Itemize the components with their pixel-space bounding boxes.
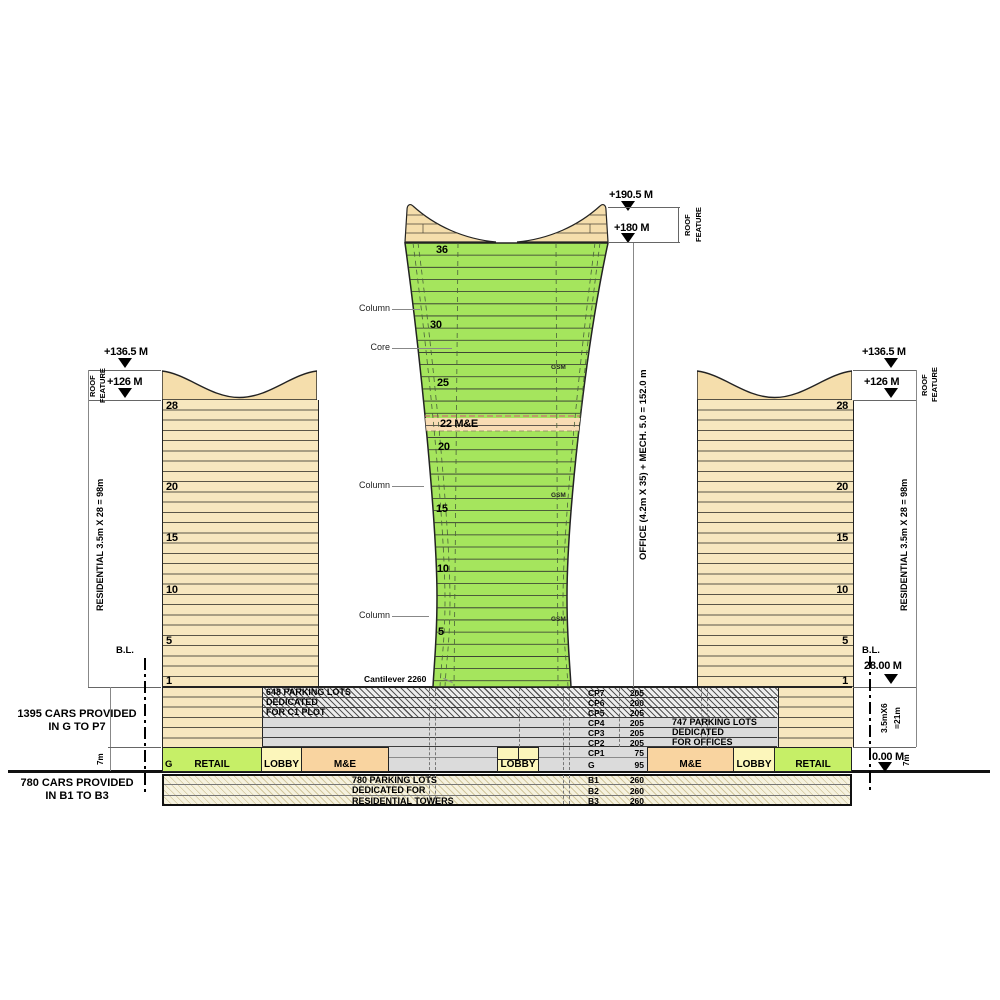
elev-marker-icon (884, 388, 898, 398)
lobby-label: LOBBY (501, 759, 536, 771)
elev-marker-icon (878, 762, 892, 772)
grid-dash (563, 775, 565, 804)
level-value: 75 (618, 748, 644, 758)
level-value: 200 (618, 698, 644, 708)
left-elev-roof: +126 M (107, 376, 142, 388)
retail-left-block: RETAIL (162, 747, 262, 772)
elev-marker-icon (118, 388, 132, 398)
left-tower-roof-feature (162, 367, 317, 400)
ground-g-label: G (165, 759, 172, 770)
office-elev-top: +190.5 M (609, 189, 653, 201)
dim-line (853, 687, 916, 688)
column-label: Column (330, 610, 390, 620)
level-value: 260 (618, 796, 644, 806)
level-value: 205 (618, 728, 644, 738)
grid-dash (519, 688, 521, 747)
left-height-dim-note: RESIDENTIAL 3.5m X 28 = 98m (95, 445, 113, 645)
level-label: CP5 (588, 708, 616, 718)
left-7m-dim: 7m (96, 747, 109, 771)
leader-line (392, 309, 420, 310)
office-floor-label: 20 (438, 441, 450, 453)
level-value: 205 (618, 738, 644, 748)
elev-marker-icon (118, 358, 132, 368)
left-floor-label: 15 (166, 532, 178, 544)
level-value: 205 (618, 708, 644, 718)
leader-line (392, 616, 429, 617)
right-bl-label: B.L. (862, 645, 880, 656)
office-floor-label: 30 (430, 319, 442, 331)
dim-line (608, 242, 680, 243)
right-floor-label: 20 (800, 481, 848, 493)
note-parking-c1: 648 PARKING LOTS DEDICATED FOR C1 PLOT (266, 687, 351, 718)
gsm-label: GSM (551, 364, 566, 371)
office-floor-label: 5 (438, 626, 444, 638)
retail-label: RETAIL (795, 759, 830, 771)
right-floor-label: 10 (800, 584, 848, 596)
level-label: B2 (588, 786, 616, 796)
right-roof-feature-label: ROOF FEATURE (920, 362, 944, 408)
left-boundary-line (144, 658, 146, 792)
office-floor-label: 36 (436, 244, 448, 256)
left-roof-feature-label: ROOF FEATURE (88, 364, 112, 408)
note-parking-offices: 747 PARKING LOTS DEDICATED FOR OFFICES (672, 717, 757, 748)
elevation-drawing: RETAIL LOBBY M&E LOBBY M&E LOBBY RETAIL … (0, 0, 1000, 1000)
office-height-dim-line (633, 243, 634, 687)
cars-basement-note: 780 CARS PROVIDED IN B1 TO B3 (12, 777, 142, 802)
lobby-label: LOBBY (737, 759, 772, 771)
office-floor-label: 10 (437, 563, 449, 575)
right-floor-label: 15 (800, 532, 848, 544)
level-label: G (588, 760, 616, 770)
retail-right-block: RETAIL (774, 747, 852, 772)
retail-label: RETAIL (194, 759, 229, 771)
column-label: Column (330, 303, 390, 313)
left-floor-label: 10 (166, 584, 178, 596)
right-7m-dim: 7m (902, 749, 915, 771)
note-parking-residential: 780 PARKING LOTS DEDICATED FOR RESIDENTI… (352, 775, 454, 807)
column-label: Column (330, 480, 390, 490)
cantilever-label: Cantilever 2260 (364, 674, 426, 684)
right-floor-label: 1 (800, 675, 848, 687)
level-value: 95 (618, 760, 644, 770)
office-floor-label: 15 (436, 503, 448, 515)
gsm-label: GSM (551, 492, 566, 499)
left-elev-top: +136.5 M (104, 346, 148, 358)
office-floor-label: 22 M&E (440, 418, 478, 430)
me-right-block: M&E (647, 747, 734, 772)
leader-line (392, 486, 424, 487)
level-label: CP2 (588, 738, 616, 748)
office-roof-feature-label: ROOF FEATURE (682, 201, 708, 249)
right-floor-label: 28 (800, 400, 848, 412)
office-tower (395, 195, 620, 695)
right-elev-top: +136.5 M (862, 346, 906, 358)
elev-marker-icon (621, 201, 635, 211)
lobby-center-block: LOBBY (497, 747, 539, 772)
right-floor-label: 5 (800, 635, 848, 647)
dim-line (88, 687, 161, 688)
left-bl-label: B.L. (116, 645, 134, 656)
basement-box (162, 774, 852, 806)
grid-dash (563, 688, 565, 770)
left-floor-label: 20 (166, 481, 178, 493)
level-value: 260 (618, 786, 644, 796)
lobby-center-shelf (498, 759, 538, 760)
level-label: CP1 (588, 748, 616, 758)
me-label: M&E (334, 759, 356, 771)
right-tower-roof-feature (697, 367, 852, 400)
level-label: CP3 (588, 728, 616, 738)
level-label: B3 (588, 796, 616, 806)
lobby-left-block: LOBBY (261, 747, 302, 772)
dim-line (608, 207, 680, 208)
right-podium-dim: 3.5mX6 =21m (878, 692, 910, 744)
me-left-block: M&E (301, 747, 389, 772)
level-label: CP4 (588, 718, 616, 728)
right-elev-roof: +126 M (864, 376, 899, 388)
elev-marker-icon (884, 358, 898, 368)
level-value: 205 (618, 718, 644, 728)
core-label: Core (330, 342, 390, 352)
left-floor-label: 28 (166, 400, 178, 412)
grid-dash (435, 688, 437, 770)
dim-line (678, 207, 679, 242)
dim-line (853, 370, 916, 371)
level-value: 260 (618, 775, 644, 785)
lobby-label: LOBBY (264, 759, 299, 771)
left-height-dim-line (88, 370, 89, 687)
cars-podium-note: 1395 CARS PROVIDED IN G TO P7 (12, 708, 142, 733)
office-height-dim-note: OFFICE (4.2m X 35) + MECH. 5.0 = 152.0 m (638, 290, 656, 640)
lobby-right-block: LOBBY (733, 747, 775, 772)
dim-line (853, 400, 916, 401)
basement-line (164, 795, 850, 796)
level-value: 205 (618, 688, 644, 698)
gsm-label: GSM (551, 616, 566, 623)
right-boundary-line (869, 656, 871, 792)
lobby-center-divider (518, 748, 519, 759)
office-floor-label: 25 (437, 377, 449, 389)
dim-line (853, 747, 916, 748)
basement-line (164, 784, 850, 785)
grid-dash (569, 775, 571, 804)
grid-dash (429, 688, 431, 770)
left-floor-label: 1 (166, 675, 172, 687)
me-label: M&E (679, 759, 701, 771)
grid-dash (569, 688, 571, 770)
level-label: CP6 (588, 698, 616, 708)
dim-line (108, 747, 161, 748)
leader-line (392, 348, 452, 349)
level-label: B1 (588, 775, 616, 785)
elev-marker-icon (884, 674, 898, 684)
right-height-dim-note: RESIDENTIAL 3.5m X 28 = 98m (899, 445, 917, 645)
left-floor-label: 5 (166, 635, 172, 647)
